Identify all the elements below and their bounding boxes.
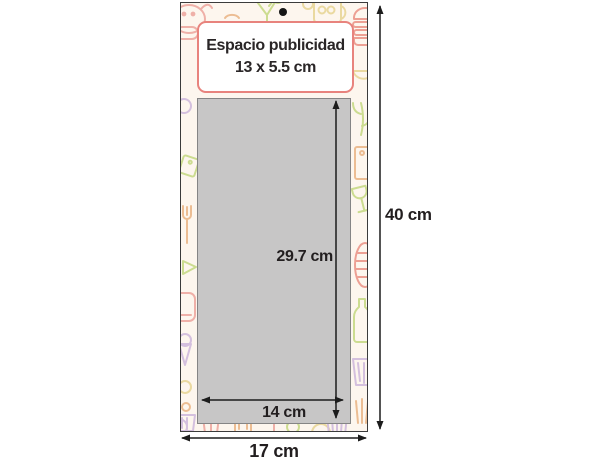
label-pad-width: 14 cm (244, 404, 324, 422)
bowl-doodle (352, 71, 368, 79)
diagram-canvas: Espacio publicidad 13 x 5.5 cm 29.7 cm 1… (0, 0, 610, 460)
ring-doodle (181, 381, 191, 393)
board-doodle (355, 147, 368, 179)
product-card: Espacio publicidad 13 x 5.5 cm (180, 2, 368, 432)
pennant-doodle (183, 261, 196, 274)
beer-mug-doodle (314, 3, 345, 23)
label-total-width: 17 cm (232, 441, 316, 460)
fries-doodle (356, 399, 368, 423)
hanging-hole (279, 8, 287, 16)
sprig-doodle (353, 103, 368, 135)
burger-doodle (353, 8, 368, 45)
ring-doodle (181, 99, 191, 113)
ad-space-line1: Espacio publicidad (206, 35, 345, 57)
ring-doodle (303, 3, 313, 9)
fork-doodle (183, 206, 191, 243)
ad-space-box: Espacio publicidad 13 x 5.5 cm (197, 21, 354, 93)
ad-space-line2: 13 x 5.5 cm (235, 57, 316, 79)
corn-doodle (355, 243, 368, 287)
label-pad-height: 29.7 cm (253, 248, 333, 266)
cup-doodle (181, 415, 195, 431)
ice-cream-doodle (181, 334, 191, 365)
toast-doodle (181, 293, 195, 321)
basket-doodle (353, 359, 368, 385)
wine-glass-doodle (352, 186, 368, 213)
label-total-height: 40 cm (385, 205, 432, 225)
ring-doodle (182, 403, 190, 411)
bottle-doodle (354, 299, 368, 342)
croissant-doodle (225, 15, 239, 18)
